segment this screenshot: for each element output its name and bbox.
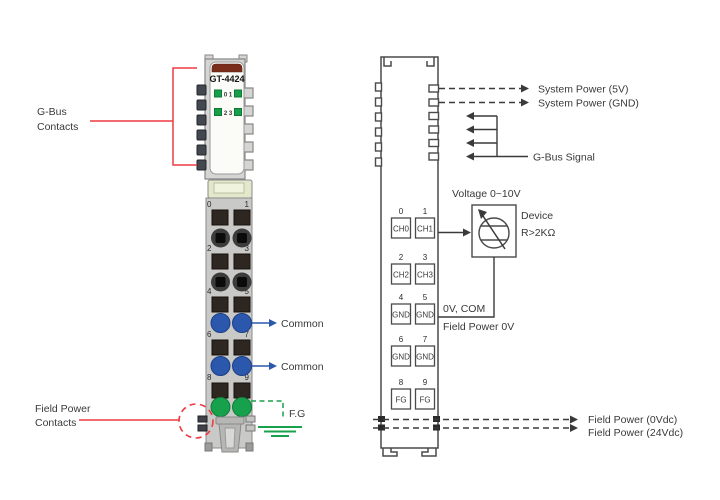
svg-text:7: 7 [423,335,428,344]
svg-text:5: 5 [423,293,428,302]
field-power-0vdc-label: Field Power (0Vdc) [588,414,677,426]
terminal-number: 6 [207,330,212,339]
common-terminal-hole [211,357,230,376]
zero-v-com-label: 0V, COM [443,303,485,315]
gbus-callout-bracket [173,68,197,165]
field-power-contact-tab [198,425,207,431]
gbus-contact-tab [197,85,206,95]
arrow-right-icon [521,99,529,107]
common-label-top: Common [281,318,324,330]
module-foot [205,443,212,451]
svg-text:4: 4 [399,293,404,302]
gbus-contact-tab [197,145,206,155]
field-power-contact-tab [198,416,207,422]
schematic-top-hook [427,57,434,66]
svg-text:2: 2 [399,253,404,262]
fg-dashed-line [251,401,283,420]
gbus-contacts-label: Contacts [37,121,78,133]
svg-text:0: 0 [399,207,404,216]
arrow-left-icon [466,126,474,134]
common-terminal-hole [233,357,252,376]
diagram-canvas: GT-4424 0 1 2 3 0 1 2 3 4 5 6 7 8 9 [0,0,720,500]
system-power-gnd-label: System Power (GND) [538,98,639,110]
gbus-signal-arrows [466,112,528,161]
led-indicator [235,109,242,116]
led-row1-label: 0 1 [224,93,233,99]
svg-text:3: 3 [423,253,428,262]
svg-text:CH3: CH3 [417,271,434,280]
fg-terminal-hole [233,398,252,417]
gbus-contact-tab [197,130,206,140]
schematic-right-tabs [429,85,439,160]
svg-text:FG: FG [395,396,406,405]
module-illustration: GT-4424 0 1 2 3 0 1 2 3 4 5 6 7 8 9 [197,55,255,452]
fg-label: F.G [289,408,305,420]
gbus-signal-label: G-Bus Signal [533,152,595,164]
terminal-number: 1 [245,200,250,209]
field-power-contacts-label: Contacts [35,417,76,429]
module-foot [246,443,253,451]
wiring-schematic: System Power (5V) System Power (GND) G-B… [373,57,683,456]
module-model-label: GT-4424 [209,74,244,84]
terminal-number: 4 [207,287,212,296]
svg-text:CH2: CH2 [393,271,410,280]
terminal-number: 8 [207,373,212,382]
arrow-right-icon [463,229,471,237]
schematic-top-hook [384,57,391,66]
common-terminal-hole [211,314,230,333]
field-power-0v-label: Field Power 0V [443,321,514,333]
field-power-contact-tab [246,416,255,422]
arrow-right-icon [570,416,578,424]
svg-text:8: 8 [399,378,404,387]
system-power-5v-label: System Power (5V) [538,84,628,96]
common-label-bottom: Common [281,361,324,373]
gbus-contact-tab [197,160,206,170]
ground-symbol-icon [258,427,302,436]
terminal-number: 2 [207,244,212,253]
arrow-left-icon [466,112,474,120]
fg-terminal-hole [211,398,230,417]
bottom-latch-top [216,417,244,424]
device-name-label: Device [521,210,553,222]
schematic-foot [422,448,436,456]
led-indicator [215,90,222,97]
svg-text:GND: GND [392,353,410,362]
svg-text:GND: GND [416,311,434,320]
arrow-left-icon [466,139,474,147]
led-indicator [235,90,242,97]
device-symbol [472,205,516,257]
device-spec-label: R>2KΩ [521,227,556,239]
field-power-24vdc-label: Field Power (24Vdc) [588,427,683,439]
arrow-right-icon [269,362,277,370]
gbus-contact-tab [197,115,206,125]
svg-text:6: 6 [399,335,404,344]
svg-text:CH1: CH1 [417,225,434,234]
field-power-contact-tab [246,425,255,431]
arrow-right-icon [521,85,529,93]
arrow-right-icon [570,424,578,432]
release-latch-inner [214,183,244,193]
svg-text:1: 1 [423,207,428,216]
gbus-contact-tab [197,100,206,110]
svg-text:FG: FG [419,396,430,405]
module-top-cap [212,64,242,72]
gbus-contacts-label: G-Bus [37,106,67,118]
svg-text:GND: GND [392,311,410,320]
arrow-right-icon [269,319,277,327]
led-row2-label: 2 3 [224,111,233,117]
svg-text:GND: GND [416,353,434,362]
common-terminal-hole [233,314,252,333]
callouts: G-Bus Contacts Common Common F.G Field P… [35,68,324,438]
bottom-latch-slot [225,428,235,448]
svg-text:CH0: CH0 [393,225,410,234]
led-indicator [215,109,222,116]
voltage-range-label: Voltage 0~10V [452,188,521,200]
field-power-contacts-label: Field Power [35,403,91,415]
svg-text:9: 9 [423,378,428,387]
schematic-foot [383,448,397,456]
arrow-left-icon [466,153,474,161]
terminal-number: 0 [207,200,212,209]
